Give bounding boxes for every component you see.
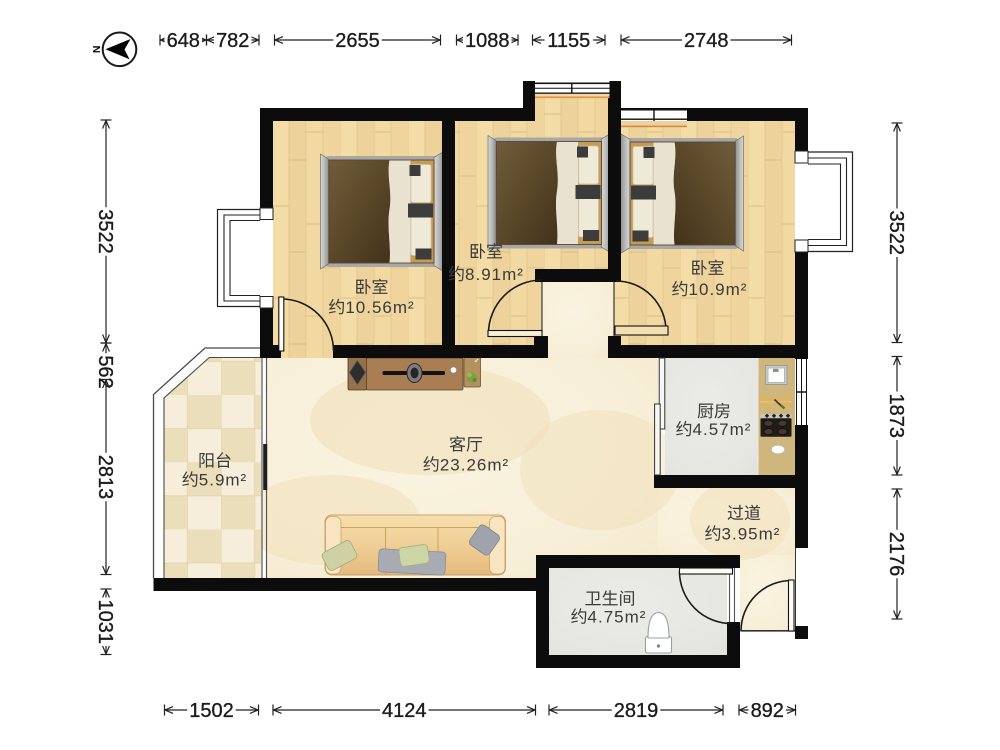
svg-text:892: 892 (751, 700, 784, 722)
svg-text:3.95m²: 3.95m² (722, 525, 781, 544)
svg-text:782: 782 (216, 30, 249, 52)
svg-text:2748: 2748 (684, 30, 729, 52)
svg-text:1873: 1873 (885, 394, 907, 439)
svg-text:4124: 4124 (382, 700, 427, 722)
svg-text:10.56m²: 10.56m² (345, 298, 414, 317)
svg-text:648: 648 (167, 30, 200, 52)
svg-text:1031: 1031 (94, 600, 116, 645)
svg-text:4.75m²: 4.75m² (588, 608, 647, 627)
svg-text:1088: 1088 (465, 30, 510, 52)
svg-text:2176: 2176 (885, 532, 907, 577)
svg-text:2819: 2819 (614, 700, 659, 722)
svg-text:4.57m²: 4.57m² (693, 420, 752, 439)
svg-text:2655: 2655 (335, 30, 380, 52)
svg-text:23.26m²: 23.26m² (440, 455, 509, 474)
svg-text:2813: 2813 (94, 455, 116, 500)
svg-text:N: N (91, 46, 103, 54)
svg-text:1502: 1502 (189, 700, 234, 722)
svg-text:10.9m²: 10.9m² (689, 280, 748, 299)
svg-text:3522: 3522 (885, 211, 907, 256)
svg-text:8.91m²: 8.91m² (465, 265, 524, 284)
svg-text:5.9m²: 5.9m² (199, 471, 247, 490)
svg-text:562: 562 (94, 355, 116, 388)
svg-text:1155: 1155 (547, 30, 590, 52)
svg-text:3522: 3522 (94, 209, 116, 254)
